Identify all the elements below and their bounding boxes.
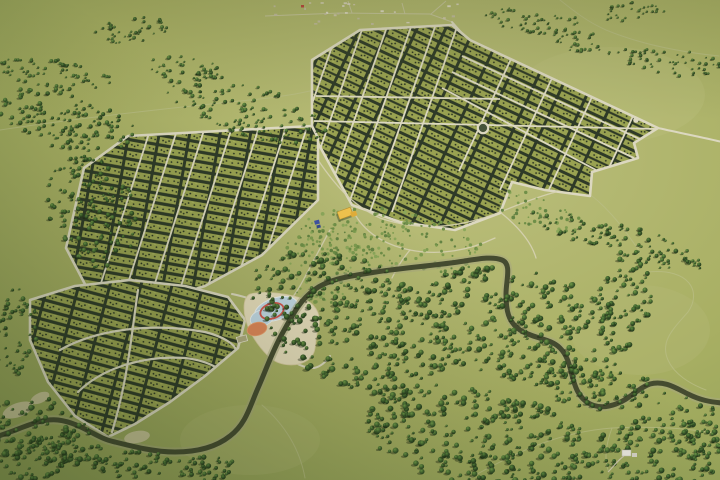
- masterplan-canvas: [0, 0, 720, 480]
- aerial-masterplan-render: [0, 0, 720, 480]
- lighting-overlay: [0, 0, 720, 480]
